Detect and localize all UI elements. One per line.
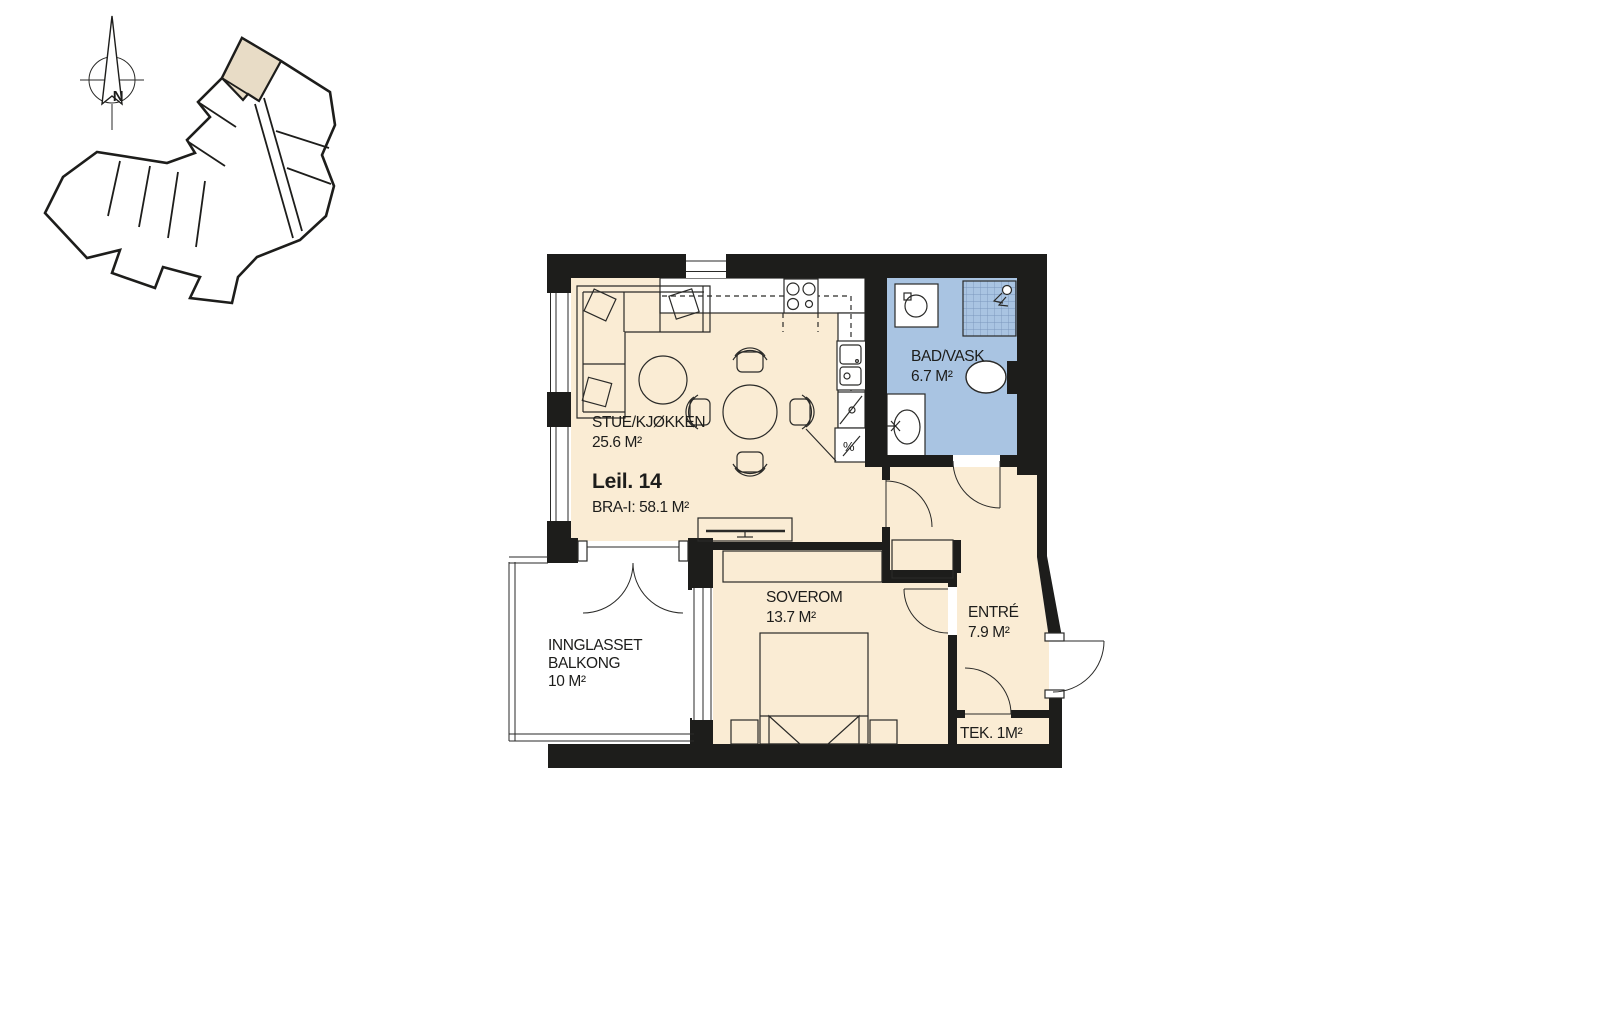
site-building-outline — [45, 38, 335, 303]
shower-icon — [963, 281, 1016, 336]
entry-label: ENTRÉ — [968, 604, 1019, 621]
bedroom-label: SOVEROM — [766, 589, 842, 606]
bathroom-area: 6.7 M² — [911, 368, 953, 385]
floorplan-page: N — [0, 0, 1609, 1021]
stove-icon — [784, 279, 818, 313]
kitchen-sink-icon — [837, 341, 866, 390]
balcony-label-line1: INNGLASSET — [548, 637, 643, 654]
window-bedroom — [692, 588, 713, 720]
living-room-area: 25.6 M² — [592, 434, 642, 451]
apartment-plan: % — [509, 254, 1104, 768]
window-left-lower — [547, 427, 571, 521]
unit-area: BRA-I: 58.1 M² — [592, 499, 689, 516]
toilet-icon — [966, 361, 1018, 394]
balcony-label-line2: BALKONG — [548, 655, 620, 672]
bedroom-area: 13.7 M² — [766, 609, 816, 626]
balcony-area: 10 M² — [548, 673, 586, 690]
living-room-label: STUE/KJØKKEN — [592, 414, 705, 431]
window-left-upper — [547, 293, 571, 392]
north-label: N — [113, 88, 123, 105]
floorplan-drawing: N — [0, 0, 1609, 1021]
kitchen-appliance-symbol: % — [843, 439, 855, 454]
window-top — [686, 254, 726, 278]
site-plan: N — [45, 16, 335, 303]
kitchen-cabinet-icon — [838, 392, 865, 428]
entry-area: 7.9 M² — [968, 624, 1010, 641]
tech-room-label: TEK. 1M² — [960, 725, 1022, 742]
washing-machine-icon — [895, 284, 938, 327]
unit-title: Leil. 14 — [592, 470, 662, 493]
north-arrow-icon: N — [80, 16, 144, 130]
entrance-door — [1045, 633, 1104, 698]
bathroom-sink-icon — [887, 394, 925, 456]
bathroom-label: BAD/VASK — [911, 348, 985, 365]
